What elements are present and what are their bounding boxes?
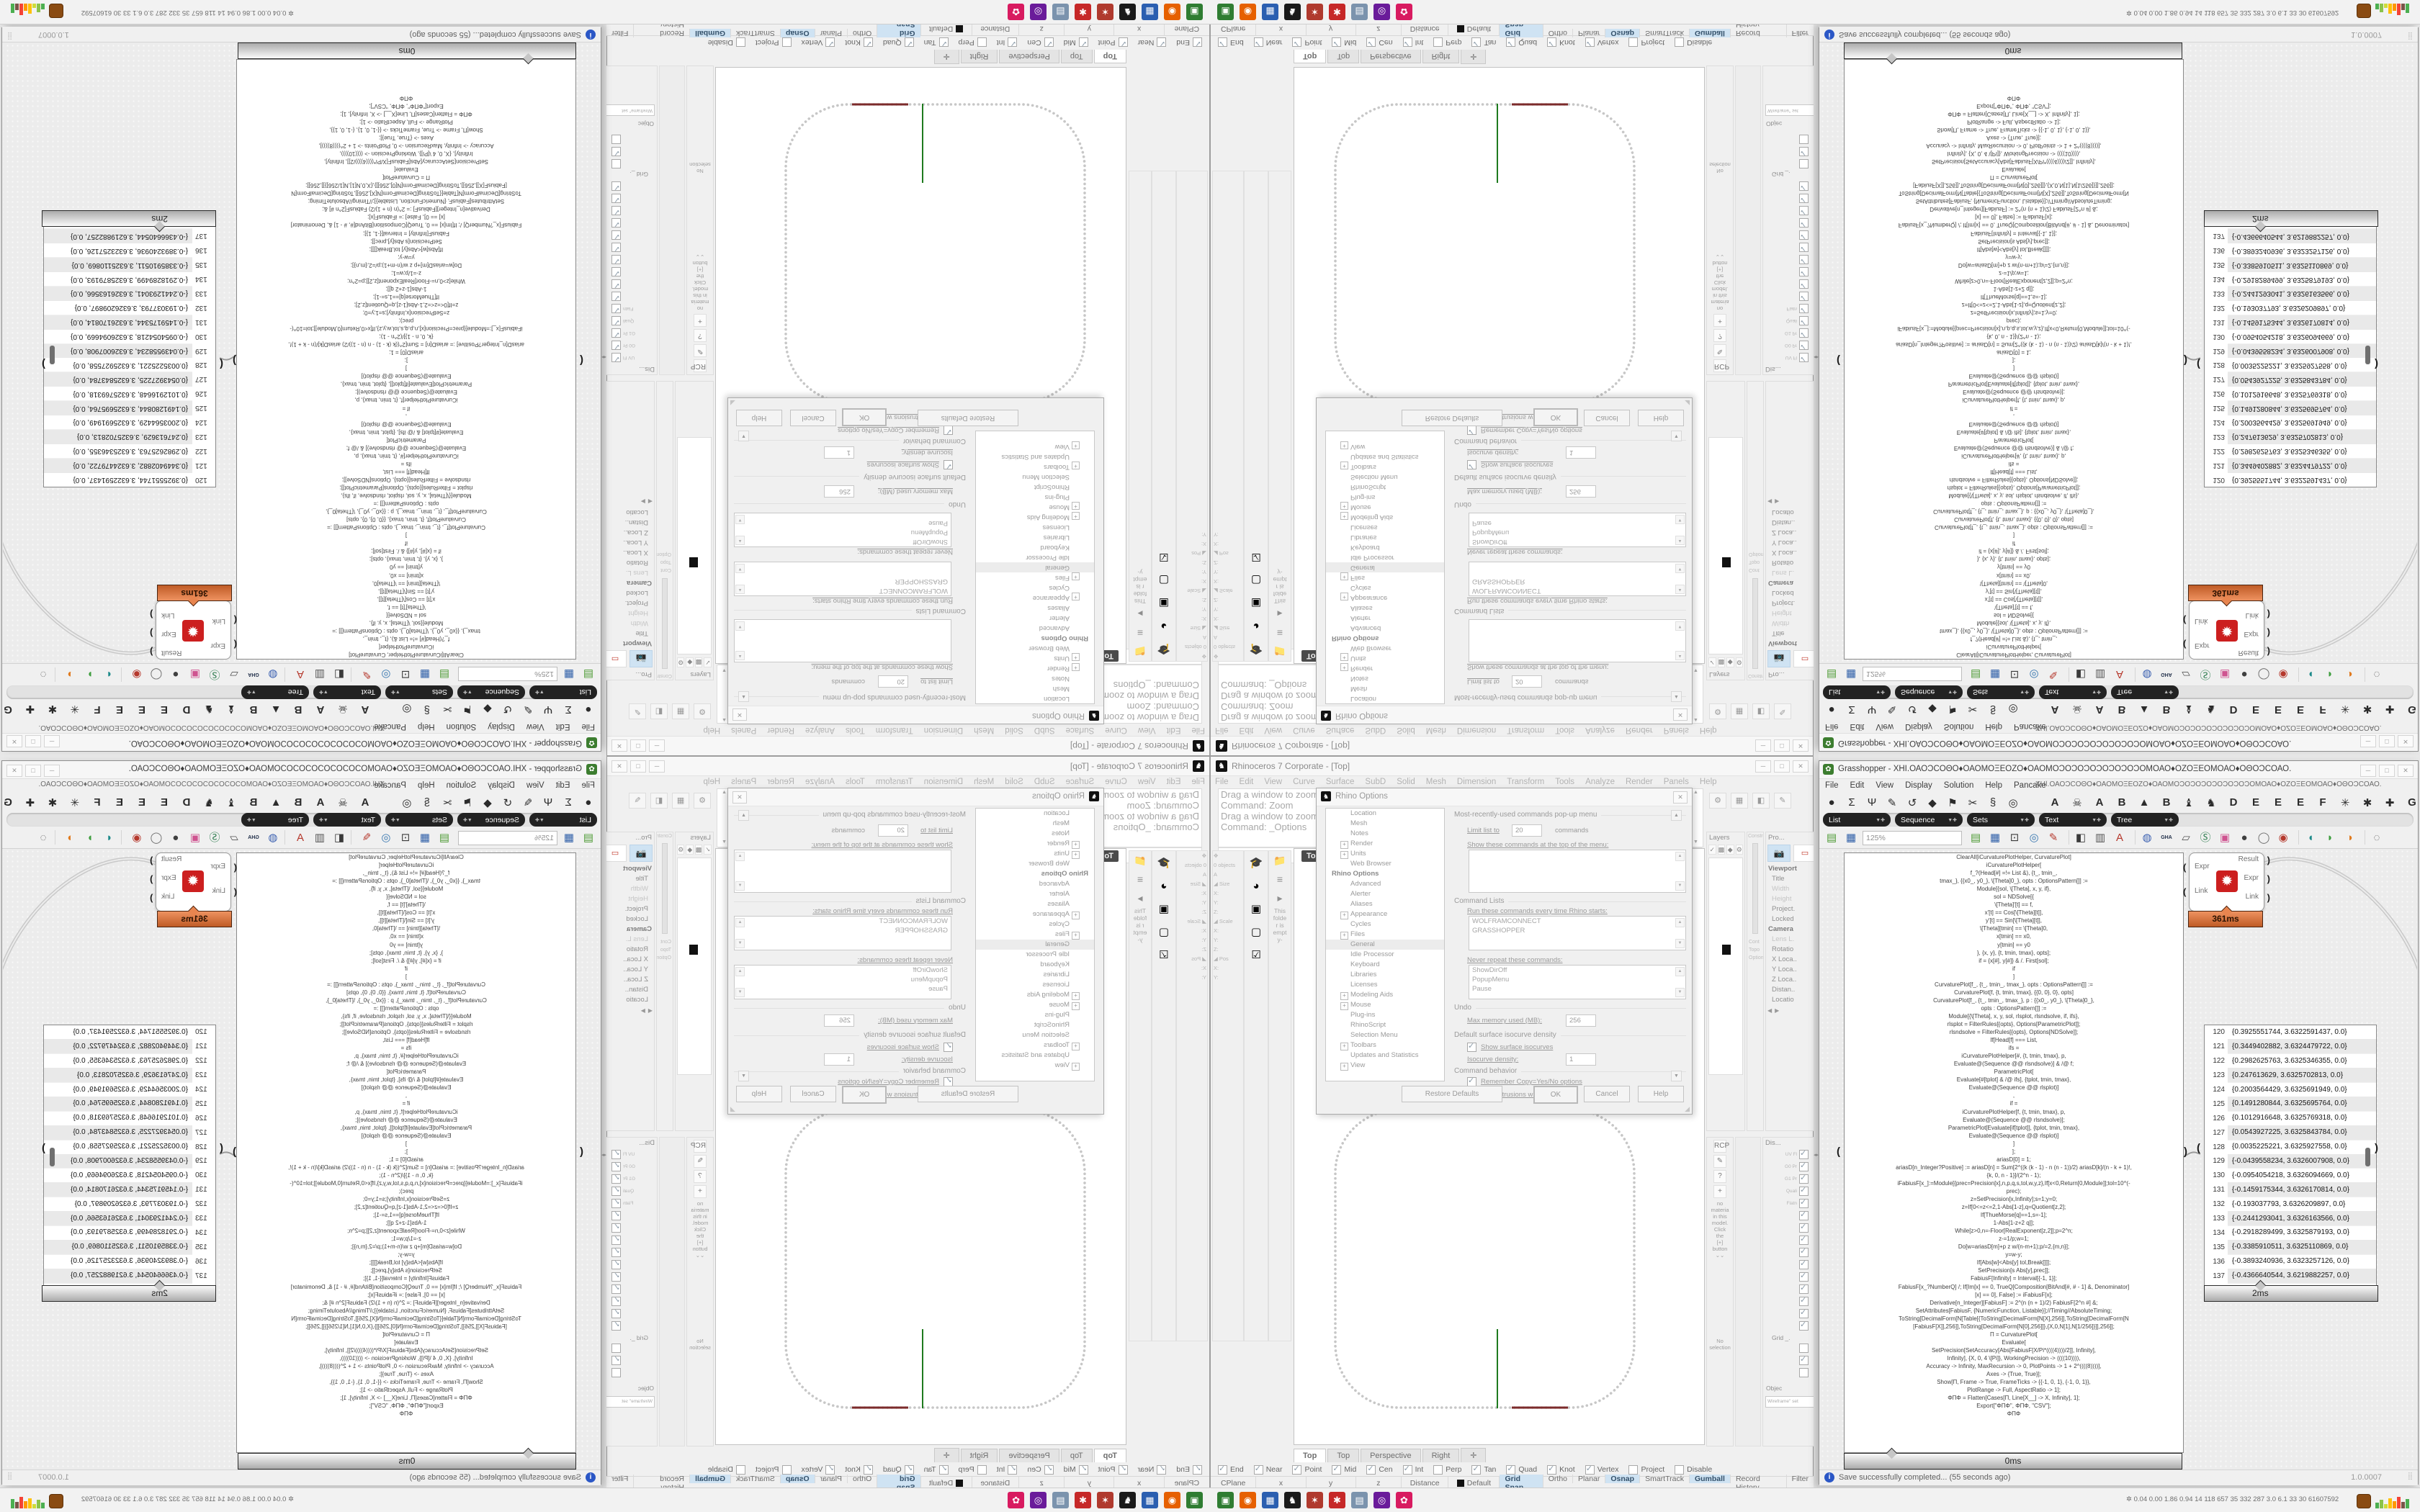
cplane-cell[interactable]: CPlane xyxy=(1211,23,1256,35)
layer-color-swatch[interactable] xyxy=(1722,945,1731,955)
property-row[interactable]: Z Loca.. xyxy=(1766,528,1819,538)
property-row[interactable]: Viewport xyxy=(601,639,654,649)
display-checkbox[interactable] xyxy=(611,1223,621,1233)
rhino-menu-item[interactable]: SubD xyxy=(1034,726,1055,734)
taskbar-app-icon[interactable]: ♞ xyxy=(1119,1492,1136,1508)
osnap-option[interactable]: Near xyxy=(1254,38,1283,48)
plugin-tab-icon[interactable]: E xyxy=(2272,703,2285,716)
property-row[interactable]: Locatio xyxy=(601,508,654,518)
toolbar-icon[interactable]: ✎ xyxy=(2045,667,2061,683)
viewport-properties-button[interactable]: ▭ xyxy=(604,650,627,667)
never-repeat-listbox[interactable]: ShowDirOffPopupMenuPause ▲▼ xyxy=(734,513,951,547)
collapsed-panel-strip[interactable] xyxy=(659,66,685,375)
layers-tool-icon[interactable]: ▩ xyxy=(695,657,703,667)
display-checkbox[interactable] xyxy=(1799,267,1809,276)
toolbar-icon[interactable]: ▱ xyxy=(2178,830,2194,846)
plugin-tab-icon[interactable]: D xyxy=(180,796,193,809)
options-tree-item[interactable]: +Units xyxy=(976,653,1094,663)
osnap-checkbox[interactable] xyxy=(1403,38,1412,48)
toolbar-icon[interactable]: ● xyxy=(2236,830,2252,846)
toolbar-icon[interactable]: ⊡ xyxy=(2007,667,2022,683)
options-tree-item[interactable]: +Mouse xyxy=(976,502,1094,512)
property-row[interactable]: Camera xyxy=(601,924,654,934)
display-option-row[interactable] xyxy=(1763,1308,1819,1320)
osnap-checkbox[interactable] xyxy=(1008,38,1017,48)
expression-component[interactable]: ( ( ) ) ) Expr Link Result Expr Link ✹ xyxy=(156,600,231,660)
property-row[interactable]: Z Loca.. xyxy=(601,528,654,538)
fabius-curve-points[interactable] xyxy=(786,104,1085,402)
plugin-tab-icon[interactable]: B xyxy=(292,703,305,716)
display-option-row[interactable]: G0 Pr xyxy=(601,1161,657,1173)
osnap-checkbox[interactable] xyxy=(1218,38,1227,48)
grasshopper-menu-item[interactable]: Help xyxy=(418,722,435,731)
tree-scroll-down[interactable]: ▼ xyxy=(1671,431,1682,441)
display-option-row[interactable]: UV Fl xyxy=(1763,1148,1819,1161)
rhino-menu-item[interactable]: Transform xyxy=(876,778,913,786)
link-output-label[interactable]: Link xyxy=(161,611,174,619)
plugin-tab-icon[interactable]: A xyxy=(2093,796,2106,809)
display-option-row[interactable]: Flatn xyxy=(601,1197,657,1210)
materials-icon[interactable]: + xyxy=(694,314,707,327)
never-repeat-item[interactable]: ShowDirOff xyxy=(735,966,951,975)
statusbar-toggle[interactable]: Planar xyxy=(1573,30,1605,38)
dock-tab-icon[interactable]: ✎ xyxy=(629,703,646,719)
dock-tab-icon[interactable]: ⚙ xyxy=(1709,703,1726,719)
category-pill[interactable]: Tree▼✚ xyxy=(241,813,309,827)
statusbar-toggle[interactable]: Osnap xyxy=(1605,1475,1640,1483)
taskbar-app-icon[interactable]: ✿ xyxy=(1008,4,1024,20)
remember-copy-row[interactable]: Remember Copy=Yes/No options xyxy=(1467,426,1582,435)
plugin-tab-icon[interactable]: ✱ xyxy=(46,703,59,716)
toolbar-icon[interactable]: ▢ xyxy=(1152,569,1175,592)
options-tree-item[interactable]: +Render xyxy=(1326,839,1444,849)
link-output-label[interactable]: Link xyxy=(2246,893,2259,901)
window-control-button[interactable]: ✕ xyxy=(1793,739,1809,752)
display-checkbox[interactable] xyxy=(611,1284,621,1294)
toolbar-icon[interactable]: ◎ xyxy=(378,830,394,846)
osnap-option[interactable]: Quad xyxy=(1506,38,1537,48)
options-tree-item[interactable]: +General xyxy=(976,940,1094,950)
osnap-option[interactable]: Perp xyxy=(959,38,987,48)
window-control-button[interactable]: ─ xyxy=(649,760,665,773)
never-repeat-item[interactable]: ShowDirOff xyxy=(1469,966,1685,975)
never-repeat-listbox[interactable]: ShowDirOffPopupMenuPause ▲▼ xyxy=(1469,513,1686,547)
grid-checkbox[interactable] xyxy=(611,1368,621,1377)
component-tab-icon[interactable]: ◎ xyxy=(2007,796,2020,809)
osnap-checkbox[interactable] xyxy=(1044,38,1054,48)
osnap-option[interactable]: Quad xyxy=(883,38,914,48)
component-tab-icon[interactable]: § xyxy=(421,703,434,716)
component-tab-icon[interactable]: Σ xyxy=(1845,796,1858,809)
plugin-tab-icon[interactable]: E xyxy=(2249,703,2262,716)
toolbar-icon[interactable]: ▦ xyxy=(417,830,433,846)
toolbar-icon[interactable] xyxy=(2135,668,2136,683)
statusbar-toggle[interactable]: Gumball xyxy=(1690,1475,1731,1483)
plugin-tab-icon[interactable]: ✚ xyxy=(2383,703,2396,716)
options-tree-item[interactable]: +View xyxy=(976,1061,1094,1071)
toolbar-icon[interactable] xyxy=(121,830,122,845)
property-row[interactable]: Width xyxy=(1766,618,1819,629)
data-panel-input-grip[interactable]: ( xyxy=(220,358,223,370)
folder-icon[interactable]: 📁 xyxy=(1129,851,1151,870)
options-tree-item[interactable]: +Updates and Statistics xyxy=(1326,1050,1444,1061)
window-control-button[interactable]: ✕ xyxy=(6,765,22,777)
grid-checkbox[interactable] xyxy=(1799,1368,1809,1377)
grasshopper-menu-item[interactable]: Solution xyxy=(447,781,477,790)
grasshopper-titlebar[interactable]: ✿ Grasshopper - XHĪ.ΟΑΟƆCΟΘΟ♦ΟΑΟΜΟΞΕΟΖΟ♦… xyxy=(1819,761,2418,779)
display-checkbox[interactable] xyxy=(611,292,621,301)
display-checkbox[interactable] xyxy=(611,1150,621,1159)
osnap-option[interactable]: Knot xyxy=(1547,1465,1575,1475)
options-tree-item[interactable]: +Mesh xyxy=(1326,683,1444,693)
ok-button[interactable]: OK xyxy=(1533,1086,1578,1104)
toolbar-icon[interactable]: ☑ xyxy=(1152,943,1175,966)
osnap-option[interactable]: Near xyxy=(1138,1465,1167,1475)
window-control-button[interactable]: □ xyxy=(1774,760,1790,773)
osnap-checkbox[interactable] xyxy=(736,1465,745,1475)
dock-tab-icon[interactable]: ◧ xyxy=(1752,793,1770,809)
toolbar-icon[interactable]: 🎓 xyxy=(1152,851,1175,874)
osnap-checkbox[interactable] xyxy=(1157,38,1166,48)
toolbar-icon[interactable]: ✎ xyxy=(359,830,375,846)
display-option-row[interactable] xyxy=(601,1295,657,1308)
expression-component[interactable]: ( ( ) ) ) Expr Link Result Expr Link ✹ xyxy=(156,852,231,912)
data-panel-output-grip[interactable]: ) xyxy=(42,1142,45,1154)
options-tree-item[interactable]: +Selection Menu xyxy=(1326,472,1444,482)
dialog-close-icon[interactable]: ✕ xyxy=(1673,708,1688,721)
display-checkbox[interactable] xyxy=(611,1321,621,1331)
osnap-checkbox[interactable] xyxy=(1506,1465,1515,1475)
options-tree-item[interactable]: +Modeling Aids xyxy=(976,990,1094,1000)
options-tree-item[interactable]: +Aliases xyxy=(976,899,1094,909)
toolbar-icon[interactable]: 🎓 xyxy=(1245,638,1268,661)
osnap-checkbox[interactable] xyxy=(977,38,987,48)
property-row[interactable]: X Loca.. xyxy=(1766,548,1819,558)
plugin-tab-icon[interactable]: A xyxy=(2048,703,2061,716)
category-pill[interactable]: List▼✚ xyxy=(529,685,597,699)
property-row[interactable]: X Loca.. xyxy=(601,548,654,558)
window-control-button[interactable]: □ xyxy=(1774,739,1790,752)
tree-scroll-up[interactable]: ▲ xyxy=(1671,691,1682,702)
result-output-label[interactable]: Result xyxy=(2238,855,2259,863)
options-tree-item[interactable]: +Cycles xyxy=(976,919,1094,930)
zoom-level-input[interactable] xyxy=(458,667,557,682)
collapsed-panel-strip[interactable] xyxy=(659,1137,685,1446)
rhino-menu-item[interactable]: Mesh xyxy=(974,778,994,786)
component-tab-icon[interactable]: ✂ xyxy=(1966,703,1979,716)
options-tree-item[interactable]: +Notes xyxy=(1326,829,1444,839)
osnap-option[interactable]: Cen xyxy=(1366,1465,1392,1475)
display-checkbox[interactable] xyxy=(1799,1248,1809,1257)
fabius-curve-points[interactable] xyxy=(1335,1110,1634,1408)
property-row[interactable]: Width xyxy=(601,618,654,629)
property-row[interactable]: Width xyxy=(601,883,654,894)
window-control-button[interactable]: ─ xyxy=(2360,735,2376,747)
window-control-button[interactable]: ✕ xyxy=(611,760,627,773)
taskbar-app-icon[interactable]: ✿ xyxy=(1008,1492,1024,1508)
plugin-tab-icon[interactable]: ♝ xyxy=(2182,796,2195,809)
taskbar-app-icon[interactable]: ✱ xyxy=(1329,1492,1345,1508)
panel-output-grip[interactable]: ) xyxy=(2184,354,2187,366)
component-tab-icon[interactable]: ↺ xyxy=(1906,703,1919,716)
property-row[interactable]: Title xyxy=(1766,873,1819,883)
rhino-menu-item[interactable]: Solid xyxy=(1005,726,1023,734)
osnap-checkbox[interactable] xyxy=(939,1465,949,1475)
options-tree-item[interactable]: +Rhino Options xyxy=(976,869,1094,879)
run-command-item[interactable]: GRASSHOPPER xyxy=(1469,577,1685,586)
display-checkbox[interactable] xyxy=(611,1272,621,1282)
plugin-tab-icon[interactable]: ♝ xyxy=(225,796,238,809)
osnap-checkbox[interactable] xyxy=(825,38,835,48)
materials-icon[interactable]: ? xyxy=(694,1170,707,1183)
rhino-menu-item[interactable]: Help xyxy=(1700,726,1717,734)
options-tree-item[interactable]: +Advanced xyxy=(1326,623,1444,633)
taskbar-app-icon[interactable]: ▣ xyxy=(1186,1492,1203,1508)
plugin-tab-icon[interactable]: ▲ xyxy=(2138,703,2151,716)
hamburger-icon[interactable]: ≡ xyxy=(1129,870,1151,888)
materials-icon[interactable]: ? xyxy=(1713,329,1726,342)
osnap-option[interactable]: End xyxy=(1176,1465,1202,1475)
viewport-tab[interactable]: Perspective xyxy=(1361,1449,1420,1462)
grid-checkbox[interactable] xyxy=(611,159,621,168)
statusbar-toggle[interactable]: Gumball xyxy=(689,1475,730,1483)
dock-tab-icon[interactable]: ⚙ xyxy=(694,793,711,809)
display-option-row[interactable] xyxy=(1763,266,1819,278)
component-tab-icon[interactable]: ◎ xyxy=(2007,703,2020,716)
osnap-checkbox[interactable] xyxy=(1008,1465,1017,1475)
options-tree-item[interactable]: +Mouse xyxy=(976,1000,1094,1010)
plugin-tab-icon[interactable]: ▲ xyxy=(269,703,282,716)
display-option-row[interactable]: G0 Pr xyxy=(1763,1161,1819,1173)
property-row[interactable]: Height xyxy=(1766,608,1819,618)
options-tree-item[interactable]: +Keyboard xyxy=(1326,542,1444,552)
statusbar-toggle[interactable]: Gumball xyxy=(1690,30,1731,38)
layers-tool-icon[interactable]: ⚙ xyxy=(1736,845,1744,855)
window-control-button[interactable]: ─ xyxy=(1755,739,1771,752)
taskbar-app-icon[interactable]: ▤ xyxy=(1351,4,1368,20)
osnap-checkbox[interactable] xyxy=(1332,1465,1341,1475)
category-pill[interactable]: Text▼✚ xyxy=(313,685,381,699)
taskbar-app-icon[interactable]: ◎ xyxy=(1030,1492,1047,1508)
toolbar-icon[interactable]: ◑ xyxy=(2341,830,2357,846)
layers-tool-icon[interactable]: ⚙ xyxy=(677,657,685,667)
component-tab-icon[interactable]: Σ xyxy=(562,703,575,716)
toolbar-icon[interactable]: ⊡ xyxy=(398,667,413,683)
property-row[interactable]: Width xyxy=(1766,883,1819,894)
osnap-option[interactable]: Tan xyxy=(924,1465,949,1475)
plugin-tab-icon[interactable]: B xyxy=(247,796,260,809)
property-row[interactable]: Z Loca.. xyxy=(601,974,654,984)
rhino-menu-item[interactable]: Panels xyxy=(731,726,756,734)
window-control-button[interactable]: ─ xyxy=(1755,760,1771,773)
options-tree-item[interactable]: +Aliases xyxy=(1326,603,1444,613)
component-tab-icon[interactable]: ↺ xyxy=(501,796,514,809)
window-divider[interactable]: ◂▸ xyxy=(601,24,606,756)
toolbar-icon[interactable] xyxy=(2069,668,2069,683)
save-file-icon[interactable]: ▦ xyxy=(561,830,577,846)
rhino-titlebar[interactable]: ♞ Rhinoceros 7 Corporate - [Top] ─□✕ xyxy=(607,736,1209,755)
plugin-tab-icon[interactable]: ♞ xyxy=(202,703,215,716)
rhino-menu-item[interactable]: Surface xyxy=(1066,726,1095,734)
zoom-level-input[interactable] xyxy=(1863,831,1962,845)
osnap-option[interactable]: Perp xyxy=(959,1465,987,1475)
property-row[interactable]: Project. xyxy=(1766,904,1819,914)
display-settings-input[interactable] xyxy=(601,1396,655,1408)
osnap-option[interactable]: Tan xyxy=(1471,1465,1496,1475)
osnap-option[interactable]: Cen xyxy=(1027,1465,1053,1475)
window-divider[interactable]: ◂▸ xyxy=(601,756,606,1488)
rhino-menu-item[interactable]: Panels xyxy=(1664,778,1689,786)
options-tree-item[interactable]: +Units xyxy=(1326,849,1444,859)
osnap-option[interactable]: Quad xyxy=(1506,1465,1537,1475)
category-pill[interactable]: Tree▼✚ xyxy=(2111,813,2179,827)
viewport-tab[interactable]: ✛ xyxy=(1461,50,1486,64)
osnap-checkbox[interactable] xyxy=(905,1465,914,1475)
layers-tool-icon[interactable]: ⚙ xyxy=(1736,657,1744,667)
taskbar-app-icon[interactable]: ◎ xyxy=(1030,4,1047,20)
osnap-option[interactable]: Mid xyxy=(1332,1465,1356,1475)
display-option-row[interactable]: G0 Pr xyxy=(601,339,657,351)
viewport-tab[interactable]: Top xyxy=(1294,50,1326,63)
run-commands-listbox[interactable]: WOLFRAMCONNECTGRASSHOPPER ▲▼ xyxy=(734,562,951,596)
plugin-tab-icon[interactable]: F xyxy=(91,703,104,716)
osnap-option[interactable]: End xyxy=(1218,38,1244,48)
property-row[interactable]: Camera xyxy=(1766,924,1819,934)
toolbar-icon[interactable]: ◯ xyxy=(148,830,164,846)
rhino-menu-item[interactable]: Analyze xyxy=(805,726,835,734)
display-option-row[interactable]: UV Fl xyxy=(1763,351,1819,364)
component-tab-icon[interactable]: ● xyxy=(1825,796,1838,809)
osnap-checkbox[interactable] xyxy=(1254,1465,1263,1475)
toolbar-icon[interactable] xyxy=(55,668,55,683)
osnap-checkbox[interactable] xyxy=(1506,38,1515,48)
display-checkbox[interactable] xyxy=(611,341,621,350)
options-tree-item[interactable]: +Keyboard xyxy=(976,542,1094,552)
props-scroll-right[interactable]: ▶ xyxy=(1775,498,1779,505)
materials-icon[interactable]: + xyxy=(1713,1185,1726,1198)
plugin-tab-icon[interactable]: ✳ xyxy=(2339,796,2352,809)
rhino-menu-item[interactable]: View xyxy=(1264,726,1282,734)
dialog-titlebar[interactable]: ♞ Rhino Options ✕ xyxy=(728,706,1103,724)
display-option-row[interactable]: UV Fl xyxy=(601,351,657,364)
isocurve-density-spinner[interactable]: 1 xyxy=(824,1053,854,1066)
limit-spinner[interactable]: 20 xyxy=(878,824,908,837)
remember-copy-row[interactable]: Remember Copy=Yes/No options xyxy=(838,426,953,435)
options-tree-item[interactable]: +Idle Processor xyxy=(976,950,1094,960)
window-control-button[interactable]: □ xyxy=(2379,765,2395,777)
toolbar-icon[interactable]: A xyxy=(2112,830,2128,846)
display-checkbox[interactable] xyxy=(1799,304,1809,313)
display-checkbox[interactable] xyxy=(1799,255,1809,264)
window-control-button[interactable]: □ xyxy=(630,760,646,773)
toolbar-icon[interactable]: ◍ xyxy=(2139,830,2155,846)
hamburger-icon[interactable]: ≡ xyxy=(1129,624,1151,642)
toolbar-icon[interactable]: ◑ xyxy=(2341,667,2357,683)
toolbar-icon[interactable]: ◑ xyxy=(63,830,79,846)
options-tree-item[interactable]: +General xyxy=(1326,562,1444,572)
display-checkbox[interactable] xyxy=(1799,1284,1809,1294)
plugin-tab-icon[interactable]: B xyxy=(2115,796,2128,809)
plugin-tab-icon[interactable]: G xyxy=(1,703,14,716)
materials-icon[interactable]: RCP xyxy=(1713,1140,1726,1153)
display-checkbox[interactable] xyxy=(1799,316,1809,325)
grasshopper-canvas[interactable]: ClearAll[iCurvaturePlotHelper, Curvature… xyxy=(3,42,600,663)
never-repeat-item[interactable]: PopupMenu xyxy=(735,528,951,537)
display-option-row[interactable] xyxy=(601,1320,657,1332)
rhino-menu-item[interactable]: SubD xyxy=(1034,778,1055,786)
window-control-button[interactable]: ─ xyxy=(2360,765,2376,777)
osnap-checkbox[interactable] xyxy=(1471,1465,1481,1475)
grasshopper-menu-item[interactable]: Solution xyxy=(447,722,477,731)
materials-icon[interactable]: + xyxy=(694,1185,707,1198)
component-tab-icon[interactable]: Ψ xyxy=(1865,796,1878,809)
options-tree-item[interactable]: +Libraries xyxy=(976,970,1094,980)
display-checkbox[interactable] xyxy=(611,1162,621,1171)
plugin-tab-icon[interactable]: ✚ xyxy=(24,703,37,716)
plugin-tab-icon[interactable]: ✚ xyxy=(24,796,37,809)
camera-properties-button[interactable]: 📷 xyxy=(1767,650,1791,667)
toolbar-icon[interactable]: ☑ xyxy=(1245,546,1268,569)
options-tree-item[interactable]: +Appearance xyxy=(1326,909,1444,919)
toolbar-icon[interactable]: ◎ xyxy=(378,667,394,683)
property-row[interactable]: Locked xyxy=(601,588,654,598)
category-pill[interactable]: List▼✚ xyxy=(529,813,597,827)
display-checkbox[interactable] xyxy=(611,304,621,313)
rhino-titlebar[interactable]: ♞ Rhinoceros 7 Corporate - [Top] ─□✕ xyxy=(1211,736,1813,755)
display-option-row[interactable] xyxy=(601,180,657,192)
display-option-row[interactable] xyxy=(601,1308,657,1320)
rhino-menu-item[interactable]: View xyxy=(1138,778,1156,786)
rhino-menu-item[interactable]: Edit xyxy=(1240,778,1254,786)
viewport-tab[interactable]: ✛ xyxy=(1461,1448,1486,1462)
component-tab-icon[interactable]: ⚑ xyxy=(1946,703,1959,716)
taskbar-app-icon[interactable]: ▣ xyxy=(1217,1492,1234,1508)
toolbar-icon[interactable] xyxy=(2298,830,2299,845)
viewport-tab[interactable]: Top xyxy=(1327,50,1359,63)
options-tree-item[interactable]: +Web Browser xyxy=(1326,859,1444,869)
options-tree-item[interactable]: +RhinoScript xyxy=(976,482,1094,492)
grasshopper-menu-item[interactable]: Display xyxy=(1905,722,1932,731)
toolbar-icon[interactable]: ◖ xyxy=(2303,667,2318,683)
category-pill[interactable]: Text▼✚ xyxy=(313,813,381,827)
rhino-menu-item[interactable]: Tools xyxy=(1555,726,1574,734)
osnap-checkbox[interactable] xyxy=(864,1465,873,1475)
plugin-tab-icon[interactable]: B xyxy=(2160,796,2173,809)
display-checkbox[interactable] xyxy=(1799,1260,1809,1269)
component-tab-icon[interactable]: ◆ xyxy=(1926,703,1939,716)
rhino-menu-item[interactable]: Transform xyxy=(1507,778,1544,786)
osnap-checkbox[interactable] xyxy=(1471,38,1481,48)
statusbar-toggle[interactable]: Planar xyxy=(815,30,847,38)
taskbar-app-icon[interactable]: ▤ xyxy=(1351,1492,1368,1508)
osnap-checkbox[interactable] xyxy=(1193,1465,1202,1475)
category-pill[interactable]: Sequence▼✚ xyxy=(457,813,525,827)
display-option-row[interactable]: Quali xyxy=(1763,1185,1819,1197)
grasshopper-menu-item[interactable]: Display xyxy=(488,722,515,731)
toolbar-icon[interactable]: ◖ xyxy=(2303,830,2318,846)
display-checkbox[interactable] xyxy=(611,1309,621,1318)
grid-checkbox[interactable] xyxy=(1799,1344,1809,1353)
osnap-checkbox[interactable] xyxy=(782,1465,792,1475)
osnap-option[interactable]: Perp xyxy=(1433,1465,1461,1475)
ok-button[interactable]: OK xyxy=(842,408,887,426)
grid-checkbox[interactable] xyxy=(1799,159,1809,168)
taskbar-app-icon[interactable]: ♞ xyxy=(1119,4,1136,20)
options-tree-item[interactable]: +Alerter xyxy=(1326,889,1444,899)
window-control-button[interactable]: ✕ xyxy=(611,739,627,752)
options-tree-item[interactable]: +Cycles xyxy=(1326,919,1444,930)
tree-scroll-up[interactable]: ▲ xyxy=(1671,810,1682,821)
